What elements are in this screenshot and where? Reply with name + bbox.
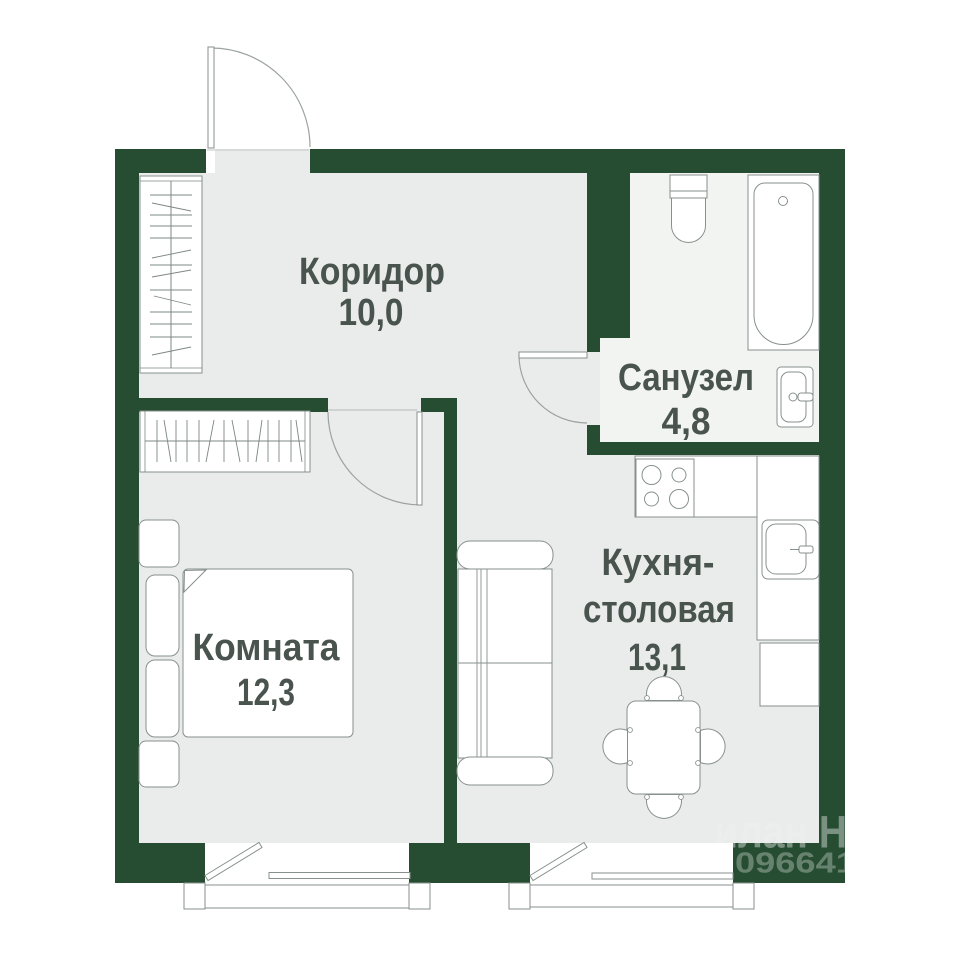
svg-text:столовая: столовая xyxy=(583,589,735,631)
svg-text:10,0: 10,0 xyxy=(339,292,404,334)
svg-text:4,8: 4,8 xyxy=(662,401,711,443)
svg-text:Комната: Комната xyxy=(193,627,341,669)
svg-text:Коридор: Коридор xyxy=(299,251,445,293)
svg-text:Санузел: Санузел xyxy=(618,357,754,399)
svg-text:12,3: 12,3 xyxy=(237,672,295,714)
svg-text:Кухня-: Кухня- xyxy=(602,542,715,584)
svg-text:13,1: 13,1 xyxy=(628,637,686,679)
